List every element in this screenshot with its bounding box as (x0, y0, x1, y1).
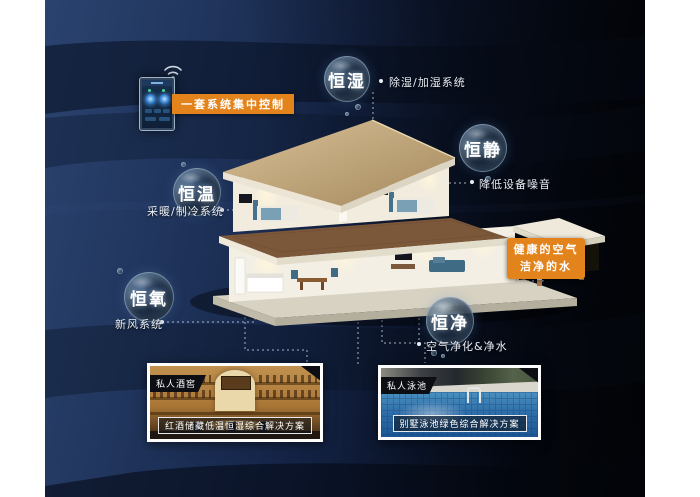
bubble-constant-humidity-label: 恒湿 (328, 67, 366, 92)
decor-bubble (345, 112, 349, 116)
panel-button (154, 109, 161, 113)
wine-picture-frame (221, 376, 250, 390)
panel-button (163, 109, 170, 113)
decor-bubble (117, 268, 123, 274)
wine-bottles-row (259, 375, 317, 383)
wine-bottles-row (259, 390, 317, 398)
temperature-dial (145, 94, 156, 105)
humidity-dial (159, 94, 170, 105)
wine-cellar-tag: 私人酒窖 (150, 375, 206, 392)
smart-control-panel (139, 77, 175, 131)
note-heating-cooling: 采暖/制冷系统 (147, 203, 224, 219)
pool-ladder (467, 387, 481, 403)
decor-bubble (441, 354, 445, 358)
decor-bubble (355, 104, 361, 110)
pool-card: 私人泳池 别墅泳池绿色综合解决方案 (378, 365, 541, 440)
bubble-constant-temperature-label: 恒温 (178, 180, 216, 205)
status-led (162, 89, 165, 92)
bubble-constant-quiet: 恒静 (459, 124, 507, 172)
bubble-constant-quiet-label: 恒静 (464, 136, 502, 161)
wine-cellar-caption: 红酒储藏低温恒湿综合解决方案 (158, 417, 312, 434)
bubble-constant-clean-label: 恒净 (431, 309, 469, 334)
central-control-label: 一套系统集中控制 (172, 94, 294, 114)
panel-button (159, 117, 170, 121)
panel-button (145, 109, 152, 113)
infographic-canvas: 一套系统集中控制 恒湿 恒静 恒温 恒氧 恒净 除湿/加湿系统 降低设备噪音 采… (0, 0, 700, 497)
status-led (148, 89, 151, 92)
panel-title-bar (142, 80, 172, 86)
wine-cellar-card: 私人酒窖 红酒储藏低温恒湿综合解决方案 (147, 363, 323, 442)
note-noise: 降低设备噪音 (479, 176, 551, 192)
bubble-constant-humidity: 恒湿 (324, 56, 370, 102)
control-panel-screen (142, 80, 172, 128)
panel-button (145, 117, 156, 121)
scene-background: 一套系统集中控制 恒湿 恒静 恒温 恒氧 恒净 除湿/加湿系统 降低设备噪音 采… (45, 0, 645, 497)
bubble-constant-oxygen: 恒氧 (124, 272, 174, 322)
healthy-air-water-box: 健康的空气 洁净的水 (507, 238, 585, 279)
healthy-air-line: 健康的空气 (507, 242, 585, 259)
bubble-constant-oxygen-label: 恒氧 (130, 285, 168, 310)
wine-cellar-photo: 私人酒窖 红酒储藏低温恒湿综合解决方案 (150, 366, 320, 439)
note-dehumidify: 除湿/加湿系统 (389, 74, 466, 90)
clean-water-line: 洁净的水 (507, 259, 585, 276)
pool-tag: 私人泳池 (381, 377, 437, 394)
note-fresh-air: 新风系统 (115, 316, 163, 332)
note-purification: 空气净化&净水 (426, 338, 508, 354)
pool-photo: 私人泳池 别墅泳池绿色综合解决方案 (381, 368, 538, 437)
pool-caption: 别墅泳池绿色综合解决方案 (392, 415, 526, 432)
decor-bubble (181, 162, 186, 167)
